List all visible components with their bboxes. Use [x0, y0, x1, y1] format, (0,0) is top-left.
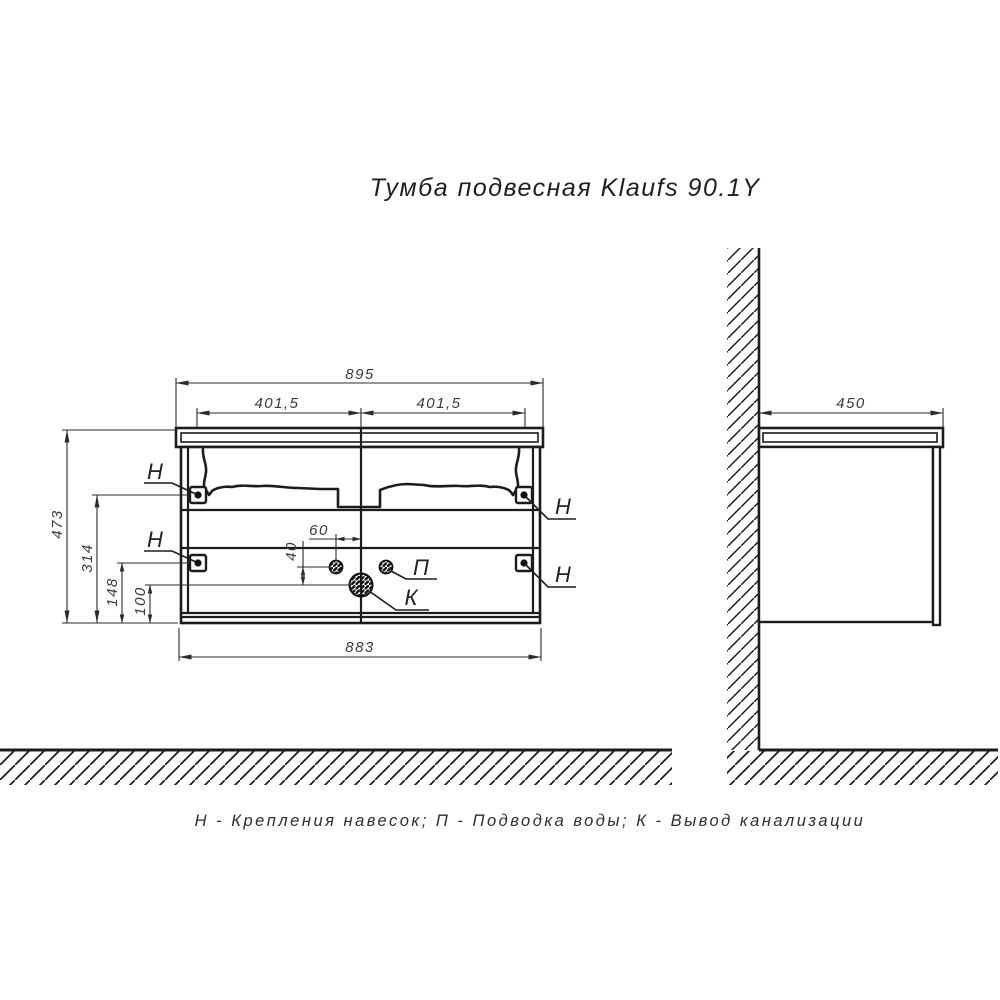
water-supply-label: П	[413, 555, 429, 580]
legend-text: Н - Крепления навесок; П - Подводка воды…	[195, 812, 866, 830]
drain-hole	[350, 574, 373, 597]
svg-text:895: 895	[345, 366, 375, 383]
technical-drawing-page: Тумба подвесная Klaufs 90.1Y	[0, 0, 1000, 1000]
floor-hatch-right	[727, 751, 998, 785]
bracket-label-lower-right: Н	[555, 562, 571, 587]
svg-text:883: 883	[345, 639, 375, 656]
drawer-front-edge	[933, 447, 940, 625]
drain-label: К	[405, 585, 419, 610]
front-countertop	[176, 428, 543, 447]
svg-text:314: 314	[79, 543, 96, 573]
wall-hatch	[727, 248, 759, 750]
svg-text:450: 450	[836, 395, 866, 412]
drawing-canvas: Тумба подвесная Klaufs 90.1Y	[0, 0, 1000, 1000]
bracket-label-upper-right: Н	[555, 494, 571, 519]
bracket-label-upper-left: Н	[147, 459, 163, 484]
svg-text:473: 473	[49, 509, 66, 539]
svg-text:401,5: 401,5	[254, 395, 299, 412]
svg-text:40: 40	[283, 541, 300, 561]
dim-total-width-top: 895	[176, 366, 543, 427]
dim-depth: 450	[759, 395, 943, 427]
water-supply-hole-left	[330, 561, 343, 574]
svg-text:148: 148	[104, 577, 121, 607]
svg-text:100: 100	[132, 586, 149, 616]
side-cabinet-body	[759, 447, 940, 625]
svg-text:401,5: 401,5	[416, 395, 461, 412]
water-supply-hole-right	[380, 561, 393, 574]
side-countertop	[759, 428, 943, 447]
front-view: Н Н Н Н П К 895 401,5 401,5	[49, 366, 576, 661]
drawing-title: Тумба подвесная Klaufs 90.1Y	[370, 174, 762, 202]
floor	[0, 750, 998, 785]
svg-text:60: 60	[309, 522, 329, 539]
dim-cabinet-width-bottom: 883	[179, 628, 541, 661]
floor-hatch-left	[0, 751, 672, 785]
side-view: 450	[727, 248, 943, 750]
bracket-label-lower-left: Н	[147, 527, 163, 552]
